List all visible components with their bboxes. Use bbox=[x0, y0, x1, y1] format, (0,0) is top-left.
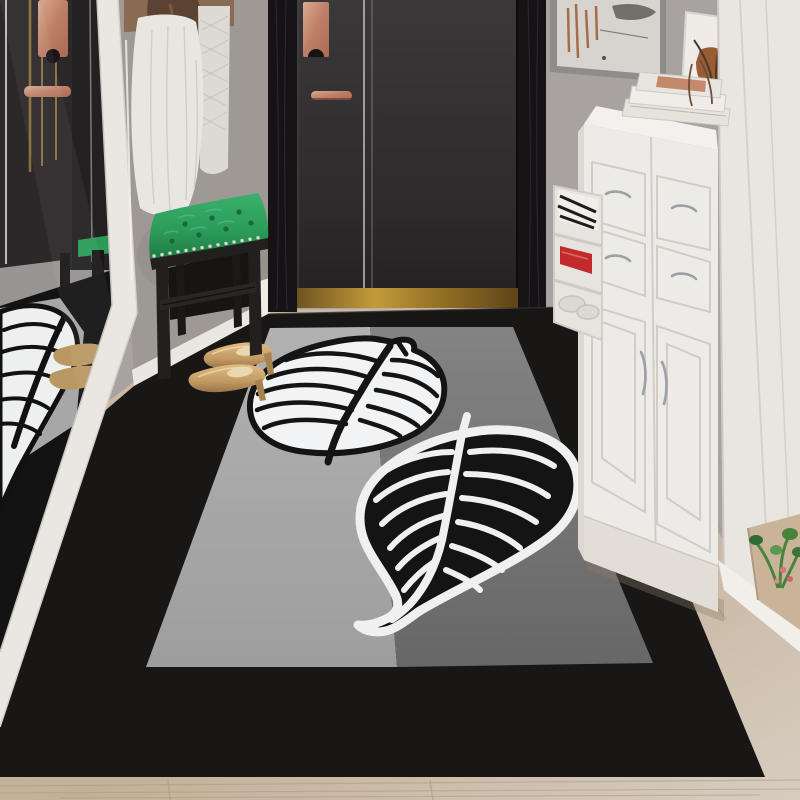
hallway-photo bbox=[0, 0, 800, 800]
door-handle bbox=[311, 91, 352, 100]
cabinet-side-edge bbox=[578, 124, 584, 560]
white-shoe-cabinet bbox=[578, 106, 724, 622]
abstract-artwork bbox=[550, 0, 666, 82]
side-shelf-unit bbox=[554, 186, 602, 340]
door-slab bbox=[297, 0, 518, 292]
door-threshold bbox=[297, 288, 518, 308]
door-frame-right bbox=[518, 0, 546, 310]
entry-door bbox=[268, 0, 546, 312]
door-frame-left bbox=[268, 0, 297, 312]
bench-leg-front-right bbox=[248, 248, 262, 356]
hallway-scene bbox=[0, 0, 800, 800]
door-rose-gold-plate bbox=[303, 2, 329, 65]
pink-flower bbox=[780, 567, 786, 573]
